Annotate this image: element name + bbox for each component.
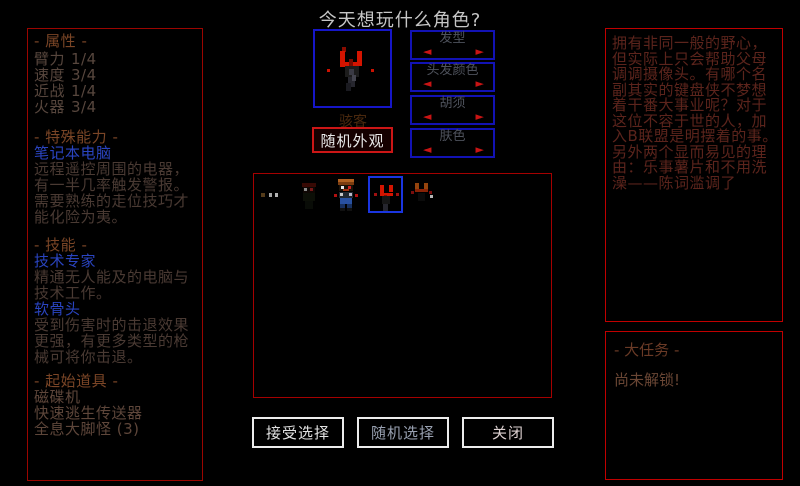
starting-item: 磁碟机	[34, 389, 198, 405]
next-arrow-icon[interactable]: ►	[476, 111, 484, 122]
random-appearance-button[interactable]: 随机外观	[312, 127, 393, 153]
random-selection-label: 随机选择	[371, 422, 435, 443]
character-preview-box	[313, 29, 392, 108]
big-quest-panel: - 大任务 - 尚未解锁!	[605, 331, 783, 480]
prev-arrow-icon[interactable]: ◄	[423, 111, 431, 122]
skin-color-label: 肤色	[412, 130, 493, 144]
random-selection-button[interactable]: 随机选择	[357, 417, 449, 448]
character-bio-panel: 拥有非同一般的野心，但实际上只会帮助父母调调摄像头。有哪个名副其实的键盘侠不梦想…	[605, 28, 783, 322]
selected-character-frame[interactable]	[368, 176, 403, 213]
starting-item: 全息大脚怪 (3)	[34, 421, 198, 437]
skin-color-stepper[interactable]: 肤色 ◄ ►	[410, 128, 495, 158]
big-quest-status: 尚未解锁!	[614, 369, 680, 390]
character-bio-text: 拥有非同一般的野心，但实际上只会帮助父母调调摄像头。有哪个名副其实的键盘侠不梦想…	[612, 34, 778, 192]
prev-arrow-icon[interactable]: ◄	[423, 144, 431, 155]
character-preview-sprite	[315, 31, 390, 106]
character-list-sprite-3[interactable]	[332, 177, 360, 211]
next-arrow-icon[interactable]: ►	[476, 144, 484, 155]
stat-value: 1/4	[71, 51, 97, 67]
ability-name: 笔记本电脑	[34, 145, 198, 161]
starting-item: 快速逃生传送器	[34, 405, 198, 421]
trait-description: 受到伤害时的击退效果更强，有更多类型的枪械可将你击退。	[34, 317, 198, 365]
stat-label: 速度	[34, 67, 65, 83]
facial-hair-stepper[interactable]: 胡须 ◄ ►	[410, 95, 495, 125]
character-info-panel: - 属性 - 臂力1/4 速度3/4 近战1/4 火器3/4 - 特殊能力 - …	[27, 28, 203, 481]
starting-items-header: - 起始道具 -	[34, 373, 198, 389]
stat-speed: 速度3/4	[34, 67, 198, 83]
stat-firearms: 火器3/4	[34, 99, 198, 115]
stat-strength: 臂力1/4	[34, 51, 198, 67]
stat-label: 火器	[34, 99, 65, 115]
trait-name: 软骨头	[34, 301, 198, 317]
prev-arrow-icon[interactable]: ◄	[423, 46, 431, 57]
close-label: 关闭	[492, 422, 524, 443]
next-arrow-icon[interactable]: ►	[476, 78, 484, 89]
facial-hair-label: 胡须	[412, 97, 493, 111]
stat-value: 3/4	[71, 67, 97, 83]
hairstyle-label: 发型	[412, 32, 493, 46]
stat-value: 3/4	[71, 99, 97, 115]
trait-name: 技术专家	[34, 253, 198, 269]
accept-selection-button[interactable]: 接受选择	[252, 417, 344, 448]
character-select-screen: 今天想玩什么角色? - 属性 - 臂力1/4 速度3/4 近战1/4 火器3/4…	[0, 0, 800, 486]
character-list-sprite-1[interactable]	[259, 181, 287, 215]
ability-description: 远程遥控周围的电器，有一半几率触发警报。需要熟练的走位技巧才能化险为夷。	[34, 161, 198, 225]
stat-value: 1/4	[71, 83, 97, 99]
trait-description: 精通无人能及的电脑与技术工作。	[34, 269, 198, 301]
character-list-sprite-2[interactable]	[295, 179, 323, 213]
prev-arrow-icon[interactable]: ◄	[423, 78, 431, 89]
skills-header: - 技能 -	[34, 237, 198, 253]
attributes-header: - 属性 -	[34, 33, 198, 49]
next-arrow-icon[interactable]: ►	[476, 46, 484, 57]
stat-label: 近战	[34, 83, 65, 99]
stat-melee: 近战1/4	[34, 83, 198, 99]
hair-color-stepper[interactable]: 头发颜色 ◄ ►	[410, 62, 495, 92]
close-button[interactable]: 关闭	[462, 417, 554, 448]
big-quest-header: - 大任务 -	[614, 339, 679, 360]
hair-color-label: 头发颜色	[412, 64, 493, 78]
stat-label: 臂力	[34, 51, 65, 67]
hairstyle-stepper[interactable]: 发型 ◄ ►	[410, 30, 495, 60]
random-appearance-label: 随机外观	[320, 130, 384, 151]
character-list-sprite-4-selected[interactable]	[372, 179, 400, 213]
stats-list: 臂力1/4 速度3/4 近战1/4 火器3/4	[34, 51, 198, 115]
character-list-box	[253, 173, 552, 398]
character-list-sprite-5[interactable]	[407, 179, 435, 213]
special-ability-header: - 特殊能力 -	[34, 129, 198, 145]
accept-selection-label: 接受选择	[266, 422, 330, 443]
